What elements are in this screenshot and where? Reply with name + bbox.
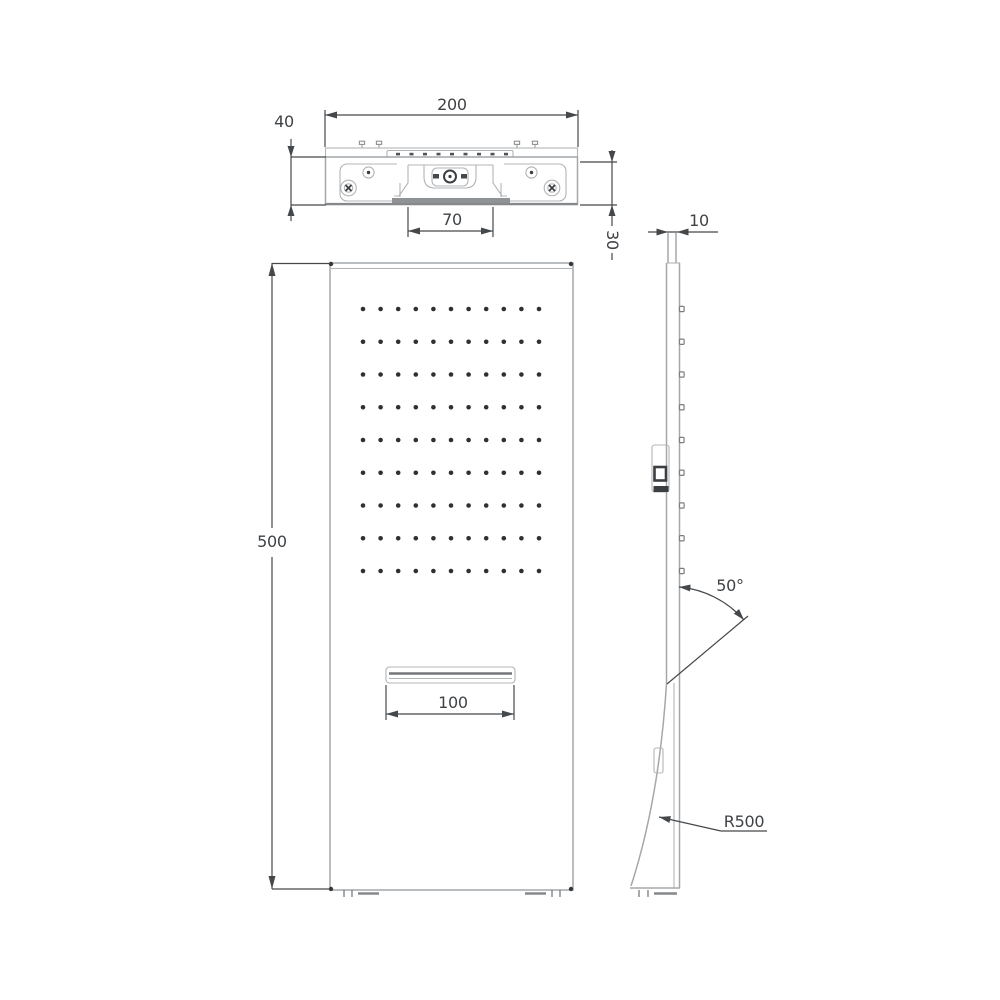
band-dash: [477, 153, 481, 156]
dim-bend-radius-label: R500: [724, 812, 765, 831]
top-view: [326, 141, 578, 204]
spray-hole: [396, 470, 401, 475]
spray-hole: [449, 503, 454, 508]
spray-hole: [361, 372, 366, 377]
spray-hole: [378, 307, 383, 312]
clip-icon: [359, 141, 364, 144]
spray-hole: [396, 536, 401, 541]
spray-hole: [361, 339, 366, 344]
spray-hole: [519, 372, 524, 377]
technical-drawing: 200 40 70 30 500: [0, 0, 1000, 1000]
top-band: [326, 148, 578, 157]
spray-hole: [414, 307, 419, 312]
jet-nub: [680, 306, 685, 311]
spray-hole: [484, 405, 489, 410]
spray-hole: [466, 470, 471, 475]
screw-left-icon: [341, 180, 357, 196]
band-dash: [504, 153, 508, 156]
spray-hole: [378, 372, 383, 377]
spray-hole: [449, 372, 454, 377]
dim-spray-angle-label: 50°: [716, 576, 743, 595]
dim-spout-width: 100: [386, 685, 514, 720]
spray-hole: [466, 372, 471, 377]
spray-hole: [502, 503, 507, 508]
spray-hole: [431, 405, 436, 410]
spray-hole: [414, 569, 419, 574]
spray-hole: [431, 569, 436, 574]
spray-hole: [431, 307, 436, 312]
dim-panel-thickness: 10: [648, 211, 718, 236]
band-dash: [396, 153, 400, 156]
spray-hole: [537, 536, 542, 541]
dim-top-height: 40: [274, 112, 326, 221]
side-top-stub: [668, 233, 676, 263]
jet-nub: [680, 437, 685, 442]
spray-hole: [414, 536, 419, 541]
spray-hole: [414, 470, 419, 475]
spray-hole: [466, 569, 471, 574]
spray-hole: [519, 307, 524, 312]
band-dash: [450, 153, 454, 156]
jet-nub: [680, 339, 685, 344]
spray-hole: [502, 339, 507, 344]
spray-hole: [484, 438, 489, 443]
spray-hole: [449, 536, 454, 541]
spray-hole: [502, 470, 507, 475]
spray-hole: [431, 503, 436, 508]
screw-right-icon: [544, 180, 560, 196]
band-dash: [437, 153, 441, 156]
jet-nub: [680, 470, 685, 475]
jet-nub: [680, 536, 685, 541]
spray-hole: [466, 339, 471, 344]
spray-hole: [537, 569, 542, 574]
spray-hole: [414, 503, 419, 508]
jet-nub: [680, 372, 685, 377]
dimensions: 200 40 70 30 500: [257, 95, 767, 889]
spray-hole: [484, 569, 489, 574]
band-dash: [491, 153, 495, 156]
side-view: [630, 233, 684, 897]
front-view: [329, 262, 573, 897]
dim-top-height-label: 40: [274, 112, 294, 131]
spray-hole: [502, 536, 507, 541]
spray-hole: [484, 536, 489, 541]
spray-hole: [361, 536, 366, 541]
spray-hole: [361, 307, 366, 312]
spray-hole: [502, 405, 507, 410]
spray-hole: [396, 503, 401, 508]
spray-hole: [466, 405, 471, 410]
spray-hole: [502, 372, 507, 377]
spray-hole: [396, 307, 401, 312]
dim-spout-width-label: 100: [438, 693, 468, 712]
spray-hole: [484, 503, 489, 508]
pin-right-icon: [526, 167, 537, 178]
spray-hole: [414, 438, 419, 443]
dim-panel-height: 500: [257, 263, 329, 889]
dim-mount-depth: 30: [580, 150, 622, 260]
spray-hole: [378, 438, 383, 443]
spray-slot: [386, 667, 515, 683]
clip-icon: [376, 141, 381, 144]
dim-outlet-recess: 70: [408, 207, 493, 237]
spray-hole: [431, 372, 436, 377]
spray-hole: [502, 438, 507, 443]
band-dash: [410, 153, 414, 156]
spray-hole: [378, 405, 383, 410]
dim-outlet-recess-label: 70: [442, 210, 462, 229]
spray-hole: [484, 372, 489, 377]
spray-hole: [378, 569, 383, 574]
spray-hole: [519, 470, 524, 475]
spray-hole: [537, 307, 542, 312]
drawing-page: 200 40 70 30 500: [0, 0, 1000, 1000]
jet-nub: [680, 503, 685, 508]
spray-hole: [449, 339, 454, 344]
spray-hole: [378, 339, 383, 344]
dim-bend-radius: R500: [659, 812, 767, 831]
spray-hole: [378, 470, 383, 475]
spray-hole: [449, 307, 454, 312]
spray-hole: [414, 339, 419, 344]
spray-hole: [431, 470, 436, 475]
spray-hole: [378, 536, 383, 541]
spray-hole: [449, 470, 454, 475]
clip-icon: [532, 141, 537, 144]
spray-hole-grid: [361, 307, 542, 574]
spray-hole: [484, 339, 489, 344]
spray-hole: [396, 372, 401, 377]
spray-hole: [519, 569, 524, 574]
clip-icon: [514, 141, 519, 144]
spray-hole: [537, 405, 542, 410]
band-dash: [423, 153, 427, 156]
spray-hole: [414, 372, 419, 377]
spray-hole: [449, 438, 454, 443]
spray-hole: [361, 438, 366, 443]
jet-nub: [680, 405, 685, 410]
spray-hole: [502, 569, 507, 574]
jet-nub: [680, 568, 685, 573]
spray-hole: [361, 503, 366, 508]
dim-mount-depth-label: 30: [603, 230, 622, 250]
spray-hole: [519, 339, 524, 344]
spray-hole: [519, 438, 524, 443]
spray-hole: [396, 405, 401, 410]
front-feet: [344, 890, 560, 897]
front-panel-outline: [330, 263, 573, 890]
spray-hole: [431, 339, 436, 344]
side-front-curve: [631, 684, 667, 886]
spray-hole: [466, 438, 471, 443]
spray-hole: [537, 503, 542, 508]
spray-hole: [431, 536, 436, 541]
spray-hole: [431, 438, 436, 443]
spray-hole: [484, 470, 489, 475]
spray-hole: [537, 470, 542, 475]
spray-hole: [466, 536, 471, 541]
top-band-dashes: [396, 153, 508, 156]
spray-hole: [361, 569, 366, 574]
spray-hole: [537, 438, 542, 443]
spray-hole: [449, 405, 454, 410]
spray-hole: [484, 307, 489, 312]
spray-hole: [361, 470, 366, 475]
spray-hole: [396, 339, 401, 344]
spray-hole: [466, 307, 471, 312]
spray-hole: [537, 372, 542, 377]
dim-overall-width: 200: [325, 95, 578, 147]
spray-hole: [449, 569, 454, 574]
spray-hole: [396, 569, 401, 574]
spray-hole: [502, 307, 507, 312]
corner-vertex-dots: [329, 262, 573, 891]
spray-hole: [519, 536, 524, 541]
spray-hole: [466, 503, 471, 508]
spray-hole: [537, 339, 542, 344]
side-feet: [639, 890, 677, 897]
dim-panel-height-label: 500: [257, 532, 287, 551]
dim-panel-thickness-label: 10: [689, 211, 709, 230]
spray-hole: [378, 503, 383, 508]
spray-hole: [396, 438, 401, 443]
dim-overall-width-label: 200: [437, 95, 467, 114]
spray-hole: [519, 503, 524, 508]
spray-hole: [519, 405, 524, 410]
top-view-clips: [359, 141, 537, 148]
spray-hole: [361, 405, 366, 410]
band-dash: [464, 153, 468, 156]
pin-left-icon: [363, 167, 374, 178]
spray-hole: [414, 405, 419, 410]
